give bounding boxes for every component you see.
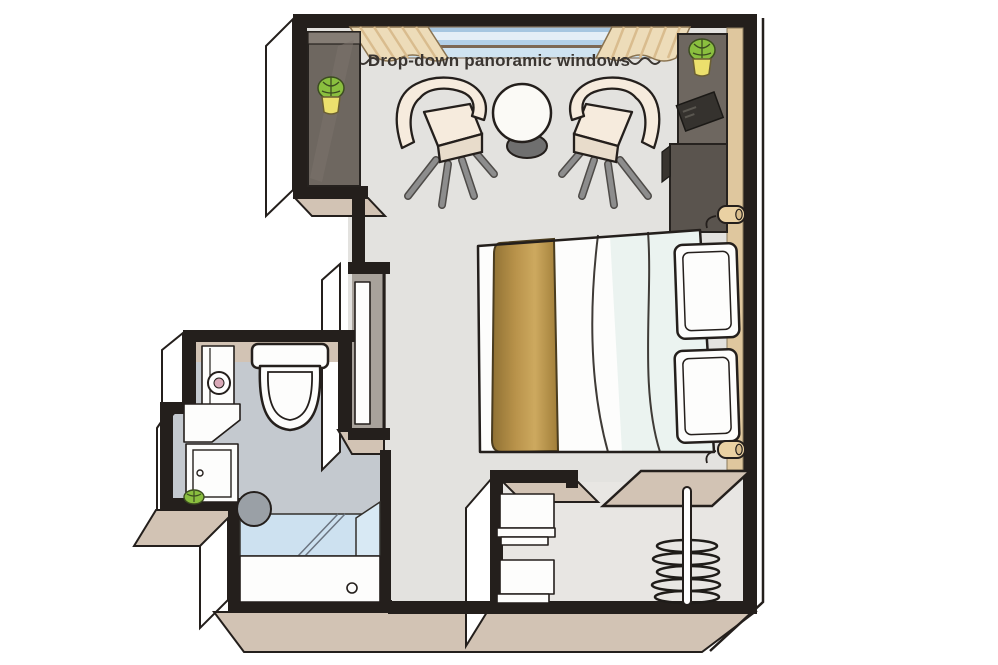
wall-top-jog bbox=[295, 198, 385, 216]
wall-shower-right bbox=[380, 450, 391, 610]
entry-door-recess bbox=[352, 274, 386, 430]
wall-bath-top bbox=[183, 330, 355, 342]
nightstand-handle bbox=[662, 146, 670, 182]
wall-left-upper bbox=[293, 14, 307, 192]
vanity-plant bbox=[184, 490, 204, 504]
wall-bath-right bbox=[338, 330, 352, 432]
toilet-tank bbox=[252, 344, 328, 368]
wall-closet-top bbox=[490, 470, 578, 482]
round-mirror-center bbox=[214, 378, 224, 388]
wall-face-top-left bbox=[266, 19, 293, 216]
shelf-ledge bbox=[501, 537, 548, 545]
shelf-stack bbox=[500, 494, 554, 528]
shower-stool bbox=[237, 492, 271, 526]
floor-plan-drawing: Drop-down panoramic windows bbox=[0, 0, 998, 665]
rail-pole bbox=[683, 487, 691, 605]
wall-closet-endcap bbox=[566, 470, 578, 488]
floor-plan-canvas: Drop-down panoramic windows bbox=[0, 0, 998, 665]
double-bed bbox=[478, 230, 740, 452]
vanity-knob bbox=[197, 470, 203, 476]
gold-bed-runner bbox=[492, 239, 558, 452]
mirror-cabinet bbox=[202, 346, 234, 410]
entry-door bbox=[355, 282, 370, 424]
shower-tray bbox=[240, 556, 380, 602]
window-label: Drop-down panoramic windows bbox=[368, 51, 630, 70]
nightstand bbox=[662, 144, 727, 232]
door-frame-bottom bbox=[348, 428, 390, 440]
pillow-top bbox=[674, 243, 739, 339]
round-table bbox=[493, 84, 551, 142]
wall-top bbox=[293, 14, 757, 28]
wall-shower-left bbox=[228, 506, 240, 610]
vanity bbox=[184, 404, 240, 504]
wall-left-mid bbox=[352, 196, 365, 266]
wall-right bbox=[743, 14, 757, 614]
shelf-ledge bbox=[497, 594, 549, 603]
door-frame-top bbox=[348, 262, 390, 274]
shelf-ledge bbox=[497, 528, 555, 537]
pillow-bottom bbox=[674, 349, 739, 443]
shelf-stack bbox=[500, 560, 554, 594]
wall-vanity-left bbox=[160, 402, 172, 510]
wall-bath-left-upper bbox=[183, 330, 196, 414]
